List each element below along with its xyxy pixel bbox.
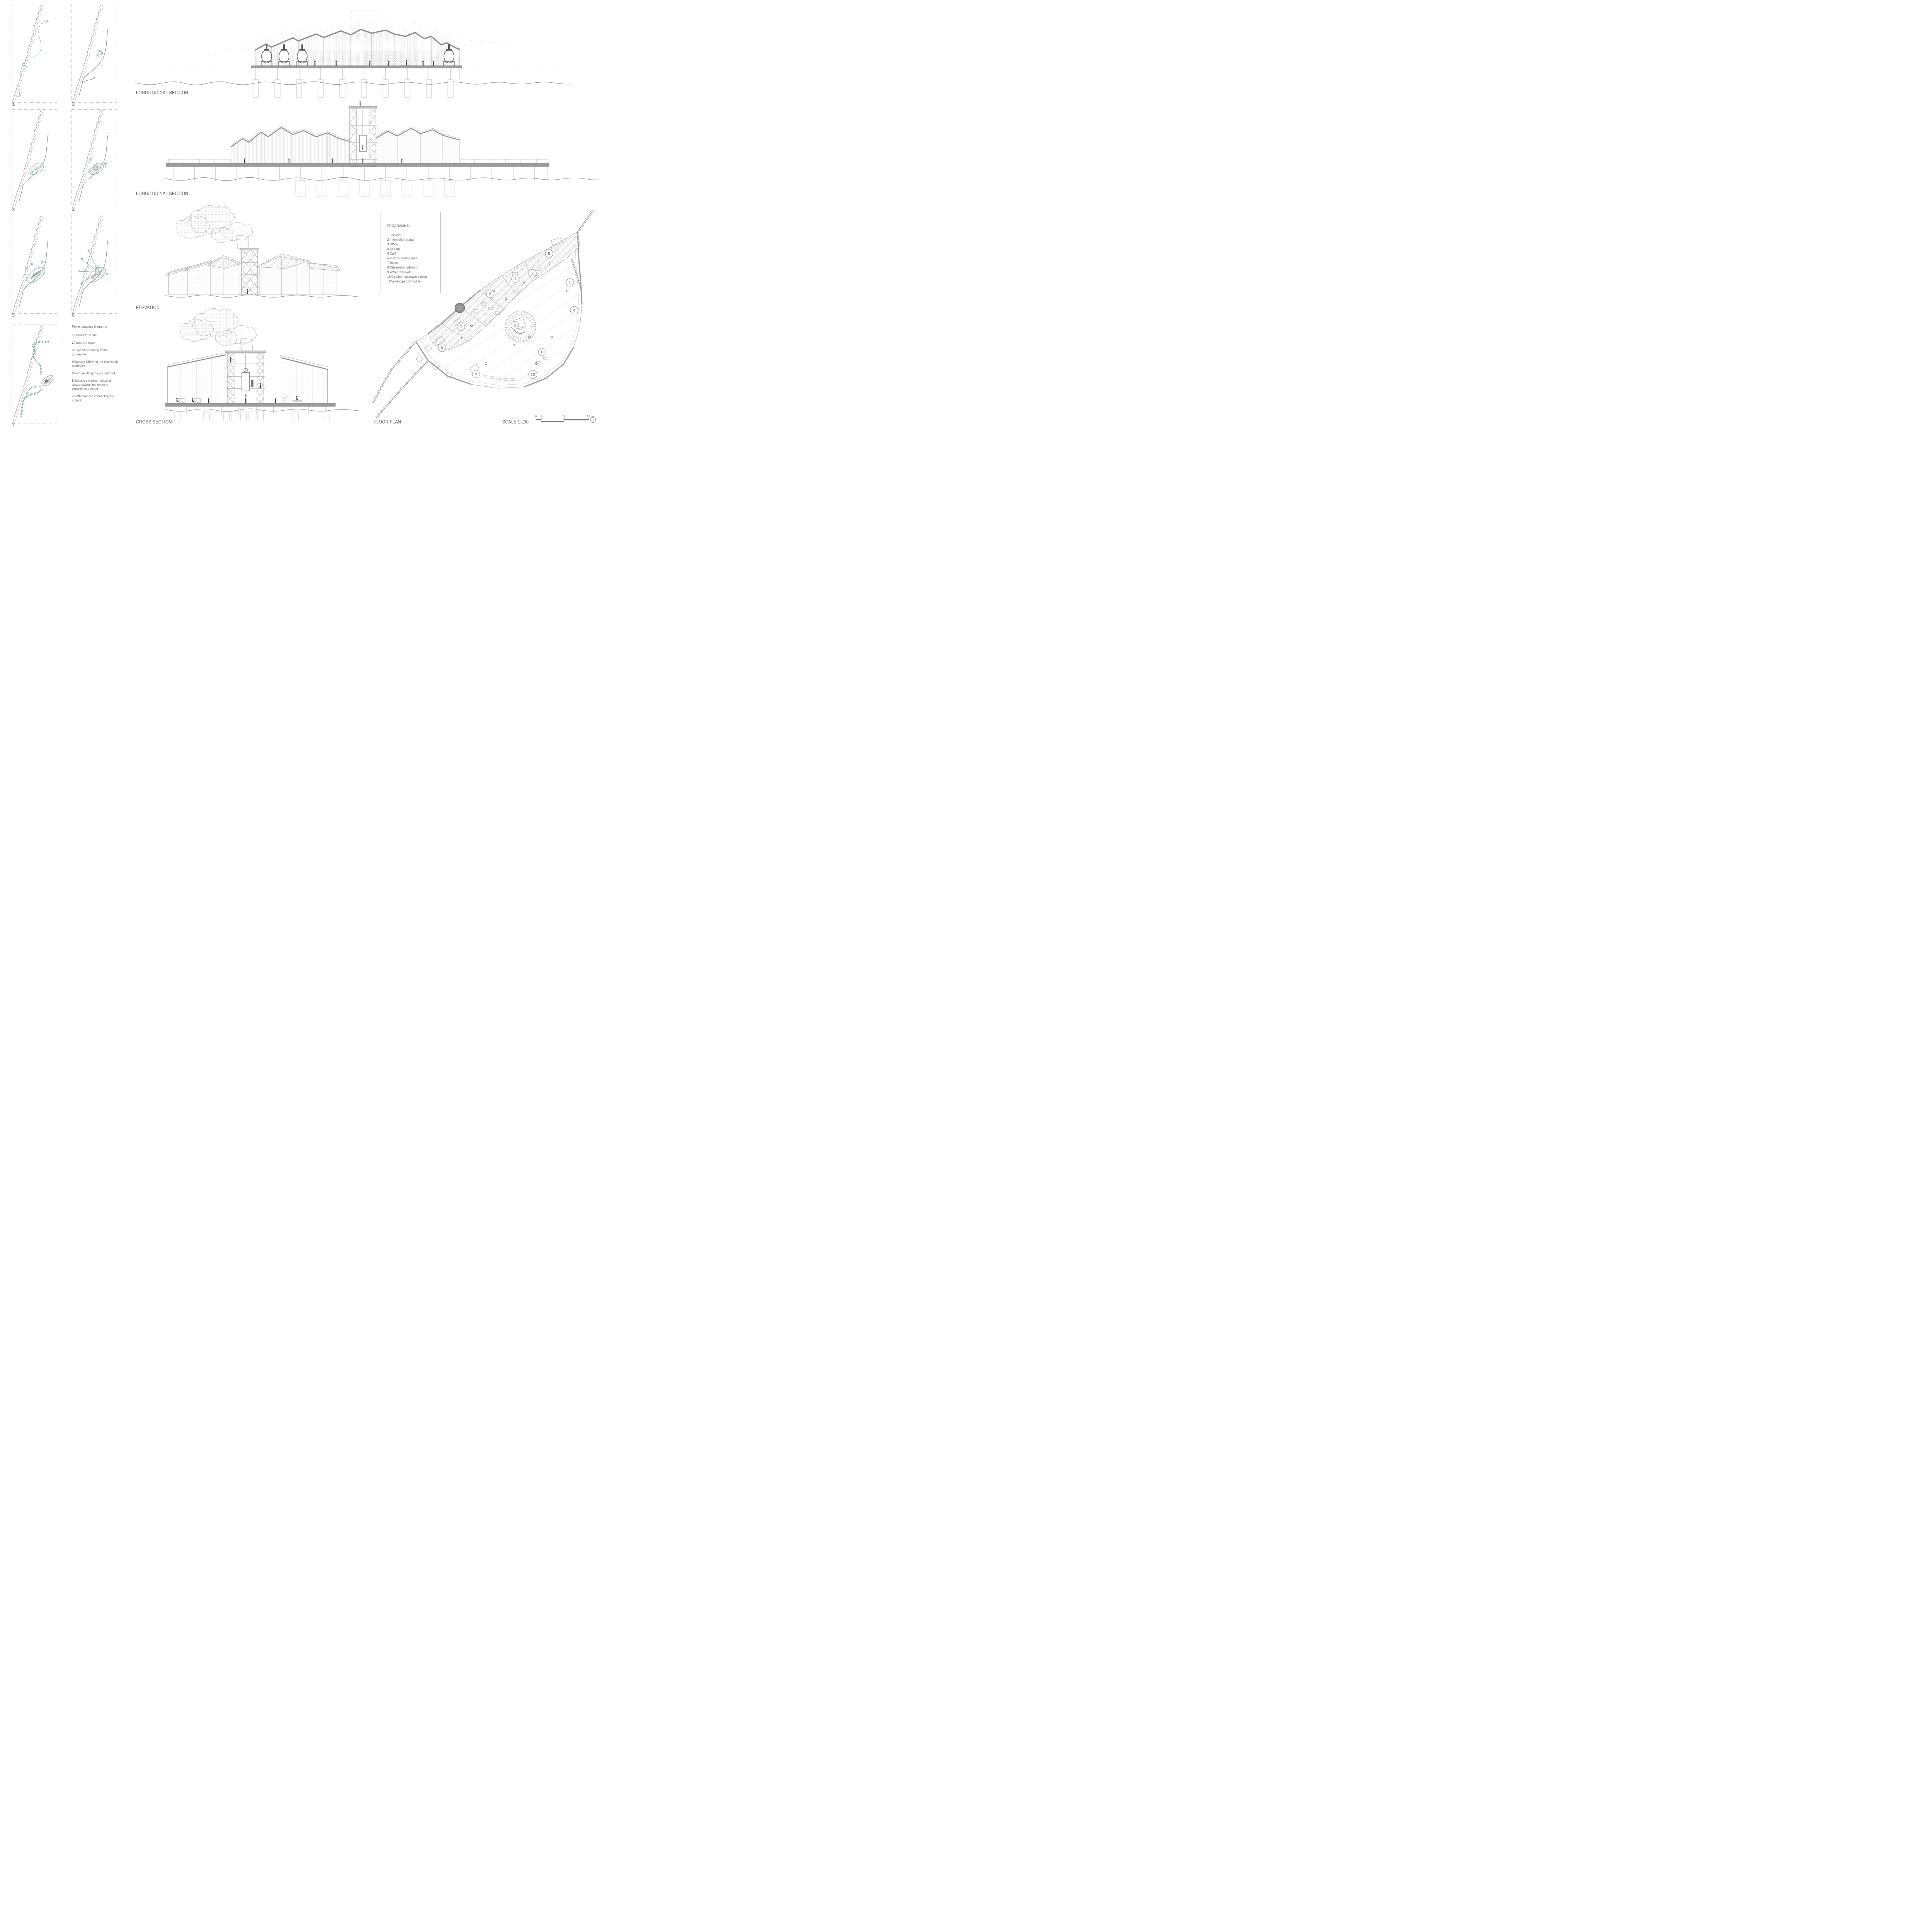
process-diagram-6: [71, 215, 117, 314]
deck-slab: [165, 403, 335, 406]
svg-text:1: 1: [569, 280, 571, 285]
deck-slab: [251, 66, 462, 68]
stilts: [170, 406, 326, 414]
svg-text:8: 8: [514, 323, 516, 328]
cross-section-drawing: [165, 308, 359, 421]
lattice-tower: [240, 248, 259, 295]
marker-6: 6: [538, 348, 546, 356]
programme-item: 7 Toilets: [387, 261, 437, 265]
dashed-pile-caps: [296, 180, 454, 197]
ground-line: [165, 409, 359, 411]
svg-text:3: 3: [514, 277, 517, 281]
left-volumes: [166, 255, 241, 295]
programme-item: 9 Water reservoit: [387, 270, 437, 275]
right-pavilion: [376, 127, 460, 163]
panel-number: 5: [12, 312, 15, 318]
svg-text:0: 0: [535, 415, 537, 418]
marker-9: 9: [545, 250, 553, 257]
tower-marker: [97, 51, 103, 56]
svg-text:9: 9: [548, 252, 550, 256]
process-diagram-2: [71, 4, 117, 103]
marker-4: 4: [570, 306, 578, 314]
panel-number: 4: [72, 207, 75, 212]
svg-text:9: 9: [475, 372, 477, 377]
programme-legend: PROGRAMME: 1 Lockers 2 Information stand…: [381, 212, 441, 293]
marker-2: 2: [529, 269, 536, 277]
ground-line: [135, 82, 574, 85]
scale-bar: 0 1 5 10: [534, 414, 597, 424]
floor-plan-label: FLOOR PLAN: [374, 419, 401, 425]
deck-planks: [424, 245, 584, 388]
programme-item: 4 Storage: [387, 247, 437, 252]
process-notes-title: Project process diagrams:: [72, 325, 119, 329]
marker-8: 8: [511, 321, 519, 329]
programme-item: 10 Geothermal power station: [387, 275, 437, 279]
svg-text:6: 6: [541, 350, 543, 355]
panel-number: 2: [72, 101, 75, 107]
programme-item: 8 Observation platform: [387, 265, 437, 270]
tower-plan: [455, 303, 465, 313]
svg-text:5: 5: [563, 415, 565, 418]
programme-item: 2 Information stand: [387, 238, 437, 242]
panel-number: 3: [12, 207, 15, 212]
svg-text:10: 10: [587, 415, 590, 418]
marker-1: 1: [566, 279, 574, 286]
elevation-drawing: [165, 199, 359, 301]
tower-section: [225, 351, 266, 404]
section-label: ELEVATION: [136, 304, 160, 310]
svg-text:10: 10: [531, 372, 535, 377]
svg-text:9: 9: [441, 346, 443, 350]
longitudinal-section-1-drawing: [135, 7, 597, 100]
right-volumes: [257, 254, 340, 295]
pile-caps: [175, 412, 329, 421]
process-note: 4Extrude following the bioclimatic strat…: [72, 360, 119, 368]
marker-10: 10: [529, 370, 537, 379]
process-notes: Project process diagrams: 1Connect the s…: [72, 325, 119, 406]
svg-text:7: 7: [460, 325, 462, 330]
section-label: LONGITUDINAL SECTION: [136, 190, 188, 196]
process-note: 6Extrude the tower focusing views toward…: [72, 379, 119, 391]
process-diagram-1: [12, 4, 57, 103]
marker-5: 5: [486, 290, 494, 297]
process-note: 1Connect the site: [72, 333, 119, 337]
rooms-band: [428, 232, 580, 350]
deck-slab: [166, 163, 549, 167]
svg-text:5: 5: [489, 292, 492, 296]
process-note: 3Expand according to the prgramme: [72, 348, 119, 357]
site-connection-path: [19, 20, 48, 97]
programme-title: PROGRAMME:: [387, 224, 437, 228]
programme-item: 6 Visitors waiting area: [387, 256, 437, 261]
scale-label: SCALE 1:200: [502, 419, 529, 425]
section-label: CROSS SECTION: [136, 419, 172, 425]
svg-text:2: 2: [531, 271, 534, 276]
programme-item: 11Walking patch module: [387, 279, 437, 284]
process-note: 2Place the tower: [72, 341, 119, 345]
north-arrow-icon: [591, 416, 596, 423]
process-diagram-7: [12, 325, 57, 423]
longitudinal-section-2-drawing: [165, 101, 598, 199]
svg-text:4: 4: [573, 308, 575, 313]
marker-3: 3: [512, 275, 519, 282]
spiral-stair: [505, 311, 536, 342]
marker-9c: 9: [472, 370, 480, 378]
process-diagram-5: [12, 215, 57, 314]
panel-number: 7: [12, 422, 15, 428]
steam-cloud: [180, 308, 256, 352]
programme-item: 3 Office: [387, 242, 437, 247]
panel-number: 6: [72, 312, 75, 318]
stilts: [173, 167, 547, 181]
ground-line: [165, 295, 359, 297]
presentation-board: 1 2: [0, 0, 606, 428]
steam-cloud: [176, 205, 252, 248]
ground-line: [165, 177, 598, 180]
programme-item: 1 Lockers: [387, 233, 437, 238]
left-shed: [166, 352, 227, 403]
svg-text:1: 1: [541, 415, 542, 418]
marker-7: 7: [457, 323, 465, 331]
process-note: 5Fold resulting the pitched roof: [72, 372, 119, 376]
elevator-cab: [242, 372, 250, 391]
panel-number: 1: [12, 101, 15, 107]
section-label: LONGITUDINAL SECTION: [136, 90, 188, 95]
hall-building: [255, 29, 460, 66]
process-diagram-3: [12, 109, 57, 208]
left-pavilion: [231, 126, 350, 163]
process-diagram-4: [71, 109, 117, 208]
right-shed: [275, 355, 329, 403]
process-note: 7Path modules connecting the project: [72, 394, 119, 403]
observation-tower: [349, 101, 377, 167]
marker-9b: 9: [438, 344, 446, 352]
programme-item: 5 Café: [387, 252, 437, 256]
